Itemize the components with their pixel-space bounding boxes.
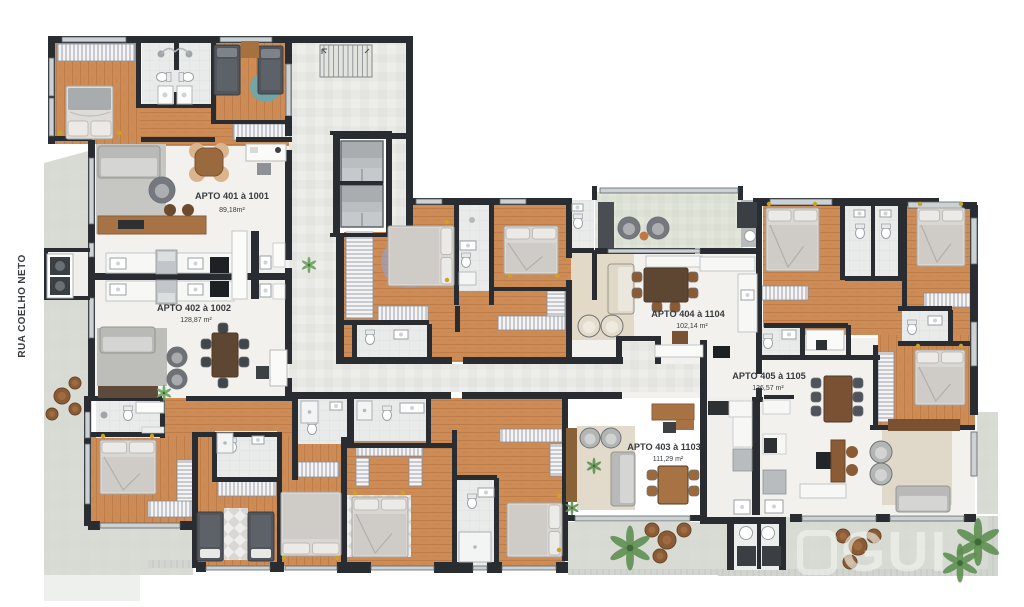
svg-text:RUA COELHO NETO: RUA COELHO NETO xyxy=(17,254,28,357)
svg-text:128,87 m²: 128,87 m² xyxy=(180,317,212,324)
svg-text:APTO 401 à 1001: APTO 401 à 1001 xyxy=(195,191,269,201)
svg-text:102,14 m²: 102,14 m² xyxy=(676,323,708,330)
svg-text:111,29 m²: 111,29 m² xyxy=(653,456,684,463)
svg-text:APTO 403 à 1103: APTO 403 à 1103 xyxy=(627,442,700,452)
svg-text:APTO 404 à 1104: APTO 404 à 1104 xyxy=(651,309,725,319)
svg-text:136,57 m²: 136,57 m² xyxy=(752,385,784,392)
svg-text:89,18m²: 89,18m² xyxy=(219,207,245,214)
svg-text:APTO 405 à 1105: APTO 405 à 1105 xyxy=(732,371,805,381)
svg-text:APTO 402 à 1002: APTO 402 à 1002 xyxy=(157,303,231,313)
svg-text:GUI: GUI xyxy=(841,520,948,584)
